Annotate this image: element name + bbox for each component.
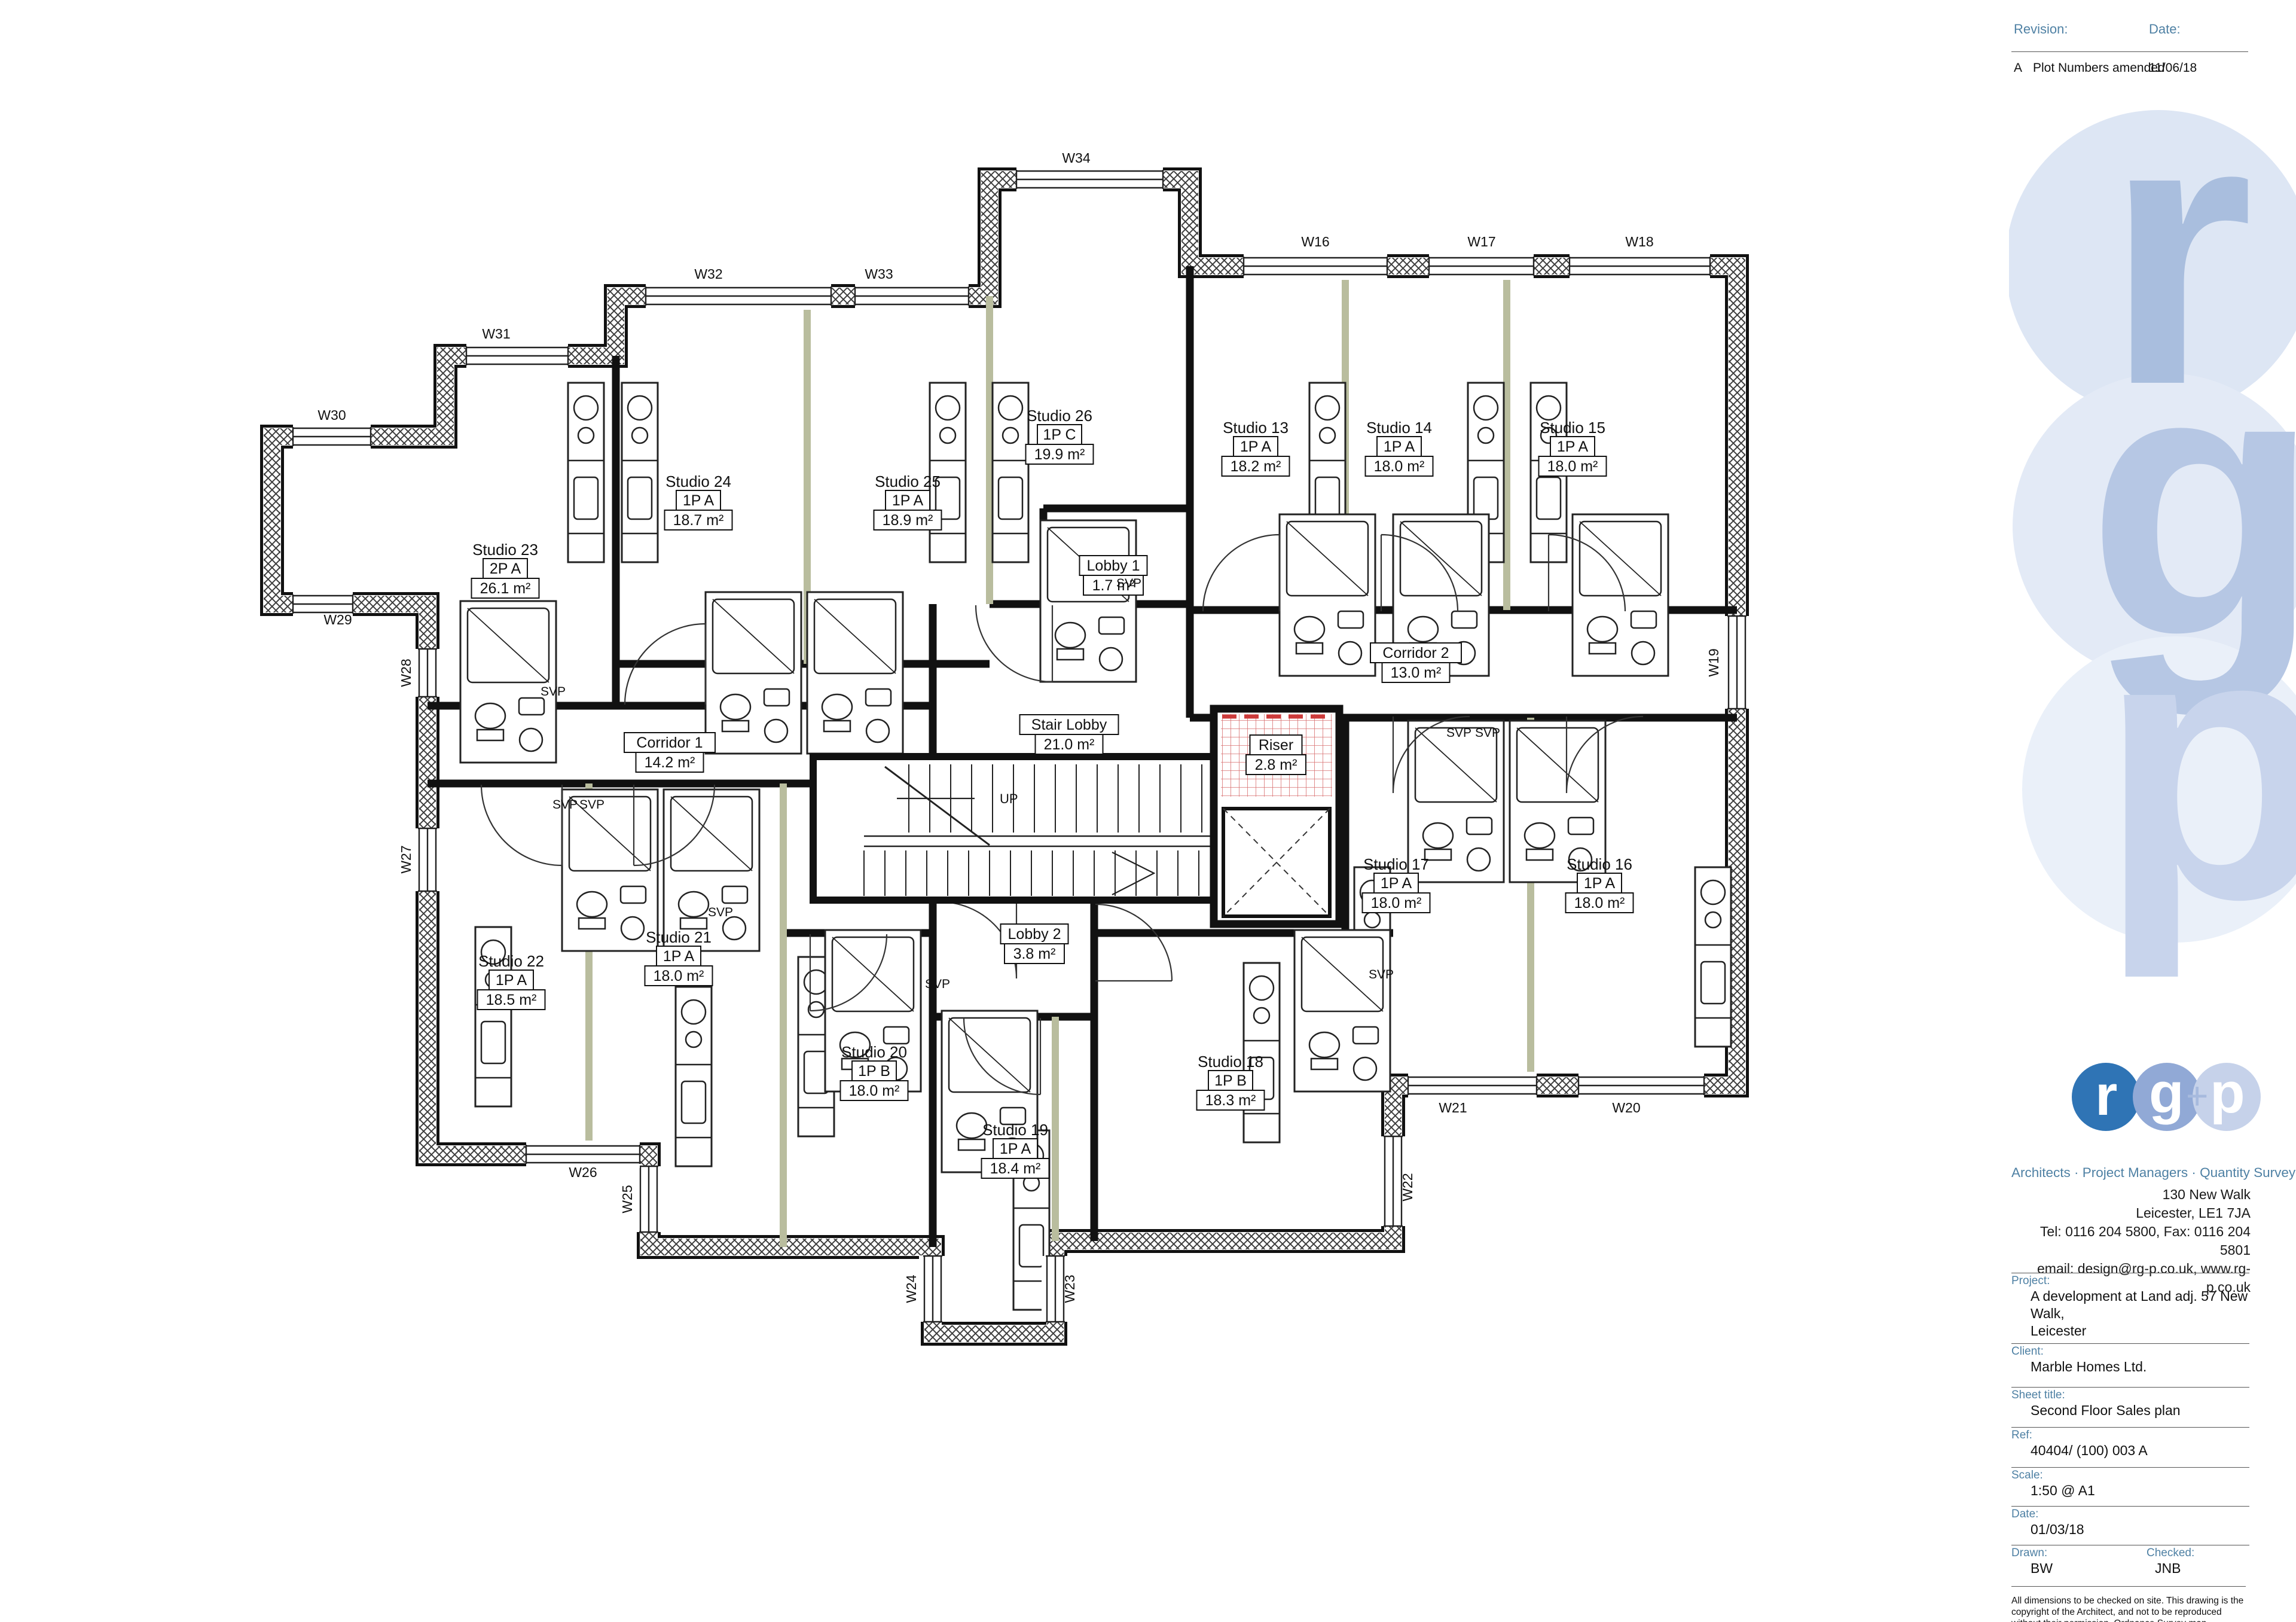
window-w16: W16 — [1244, 234, 1387, 280]
label-text: 18.0 m² — [1371, 895, 1422, 911]
room-name: Studio 14 — [1366, 419, 1432, 437]
firm-tagline: Architects · Project Managers · Quantity… — [2011, 1165, 2251, 1181]
window-label: W19 — [1706, 648, 1721, 676]
logo-letter-p: p — [2210, 1061, 2245, 1125]
logo-plus-icon: + — [2186, 1074, 2208, 1117]
window-label: W30 — [317, 407, 346, 423]
label-text: Riser — [1259, 737, 1293, 754]
revision-date-header-label: Date: — [2149, 22, 2181, 37]
logo-letter-r: r — [2095, 1063, 2117, 1127]
ref-label: Ref: — [2011, 1429, 2249, 1442]
floor-plan: W30W31W32W33W34W16W17W18W19W20W21W22W23W… — [0, 0, 2009, 1622]
label-text: 18.3 m² — [1205, 1092, 1256, 1109]
window-label: W16 — [1301, 234, 1329, 249]
room-name: Studio 23 — [472, 541, 538, 559]
svp-label: SVP — [1475, 726, 1500, 740]
rgp-logo: r g p + — [2069, 1057, 2266, 1141]
label-text: 3.8 m² — [1013, 946, 1056, 962]
floor-plan-area: W30W31W32W33W34W16W17W18W19W20W21W22W23W… — [0, 0, 2009, 1622]
window-label: W28 — [398, 658, 414, 687]
window-w23: W23 — [1042, 1256, 1077, 1322]
title-block-fields: Project: A development at Land adj. 57 N… — [2011, 1273, 2249, 1622]
window-label: W24 — [903, 1275, 919, 1303]
window-w33: W33 — [855, 266, 969, 310]
label-text: 18.0 m² — [654, 968, 704, 984]
window-w20: W20 — [1578, 1072, 1704, 1115]
window-label: W34 — [1062, 150, 1091, 166]
label-text: 1P B — [858, 1063, 890, 1080]
room-name: Studio 19 — [982, 1121, 1048, 1139]
window-label: W23 — [1062, 1275, 1077, 1303]
window-w25: W25 — [619, 1166, 662, 1232]
label-text: 1P B — [1214, 1072, 1247, 1089]
svp-label: SVP — [925, 977, 950, 991]
date-label: Date: — [2011, 1508, 2249, 1521]
svp-label: SVP — [552, 798, 578, 812]
window-w26: W26 — [526, 1141, 640, 1180]
room-label-riser: Riser2.8 m² — [1246, 735, 1306, 775]
window-label: W25 — [619, 1185, 635, 1213]
field-project: Project: A development at Land adj. 57 N… — [2011, 1273, 2249, 1343]
drawing-sheet: W30W31W32W33W34W16W17W18W19W20W21W22W23W… — [0, 0, 2296, 1622]
revision-table-rule — [2011, 51, 2248, 52]
label-text: 18.4 m² — [990, 1160, 1041, 1177]
label-text: 1P A — [1240, 438, 1272, 455]
label-text: 1P A — [683, 492, 715, 509]
window-label: W33 — [865, 266, 893, 282]
sheet-title-value: Second Floor Sales plan — [2031, 1402, 2249, 1419]
label-text: 18.0 m² — [1574, 895, 1625, 911]
label-text: 2.8 m² — [1255, 757, 1297, 773]
revision-table-header: Revision: Date: — [2014, 22, 2289, 37]
date-value: 01/03/18 — [2031, 1521, 2249, 1538]
label-text: 18.2 m² — [1231, 458, 1281, 475]
window-label: W21 — [1439, 1100, 1467, 1115]
watermark-letter-p: p — [2099, 551, 2296, 981]
room-name: Studio 21 — [646, 928, 712, 946]
rgp-watermark: r g p — [2009, 72, 2296, 1089]
firm-phone: Tel: 0116 204 5800, Fax: 0116 204 5801 — [2011, 1222, 2251, 1260]
label-text: Lobby 1 — [1087, 557, 1140, 574]
room-name: Studio 26 — [1027, 407, 1092, 425]
checked-label: Checked: — [2147, 1547, 2194, 1560]
label-text: 2P A — [490, 560, 521, 577]
field-date: Date: 01/03/18 — [2011, 1506, 2249, 1545]
window-label: W32 — [694, 266, 722, 282]
window-w32: W32 — [646, 266, 831, 310]
window-label: W17 — [1467, 234, 1495, 249]
room-label-corridor-1: Corridor 114.2 m² — [624, 733, 715, 772]
window-label: W18 — [1625, 234, 1653, 249]
svp-label: SVP — [1369, 968, 1394, 981]
label-text: 1P C — [1043, 426, 1076, 443]
client-value: Marble Homes Ltd. — [2031, 1358, 2249, 1376]
label-text: 26.1 m² — [480, 580, 531, 597]
title-panel: Revision: Date: A Plot Numbers amended 1… — [2009, 0, 2296, 1622]
label-text: 1P A — [496, 972, 527, 989]
window-label: W31 — [482, 326, 510, 342]
room-label-corridor-2: Corridor 213.0 m² — [1370, 643, 1461, 682]
stair-text: UP — [1000, 791, 1018, 806]
sheet-title-label: Sheet title: — [2011, 1389, 2249, 1402]
scale-label: Scale: — [2011, 1469, 2249, 1482]
svp-label: SVP — [708, 905, 733, 919]
room-name: Studio 25 — [875, 472, 941, 490]
label-text: Corridor 2 — [1382, 645, 1449, 661]
svp-label: SVP — [1446, 726, 1471, 740]
label-text: 1P A — [663, 948, 695, 965]
label-text: Corridor 1 — [636, 734, 703, 751]
window-w28: W28 — [398, 649, 441, 697]
svp-label: SVP — [1116, 577, 1141, 590]
svp-label: SVP — [541, 685, 566, 699]
window-w24: W24 — [903, 1256, 947, 1322]
firm-address-line2: Leicester, LE1 7JA — [2011, 1204, 2251, 1222]
window-w29: W29 — [293, 590, 353, 627]
label-text: 1P A — [1557, 438, 1589, 455]
window-w18: W18 — [1570, 234, 1710, 280]
window-w27: W27 — [398, 828, 441, 891]
label-text: Stair Lobby — [1031, 717, 1107, 733]
label-text: 18.5 m² — [486, 992, 537, 1008]
room-name: Studio 22 — [478, 952, 544, 970]
room-name: Studio 20 — [841, 1043, 907, 1061]
stair-up-label: UP — [1000, 791, 1018, 806]
label-text: 18.0 m² — [849, 1083, 900, 1099]
room-name: Studio 15 — [1540, 419, 1605, 437]
label-text: 18.9 m² — [883, 512, 933, 529]
project-value-line2: Leicester — [2031, 1322, 2249, 1340]
firm-address-line1: 130 New Walk — [2011, 1185, 2251, 1204]
drawn-value: BW — [2031, 1560, 2249, 1577]
logo-letter-g: g — [2149, 1061, 2184, 1125]
label-text: 13.0 m² — [1391, 664, 1442, 681]
label-text: 21.0 m² — [1044, 736, 1095, 753]
label-text: 1P A — [1584, 875, 1616, 892]
window-w17: W17 — [1429, 234, 1534, 280]
svp-label: SVP — [579, 798, 604, 812]
revision-header-label: Revision: — [2014, 22, 2068, 36]
room-name: Studio 18 — [1198, 1053, 1263, 1071]
window-w21: W21 — [1408, 1072, 1537, 1115]
room-name: Studio 24 — [665, 472, 731, 490]
window-w34: W34 — [1016, 150, 1163, 193]
field-sheet-title: Sheet title: Second Floor Sales plan — [2011, 1387, 2249, 1427]
window-label: W29 — [323, 612, 352, 627]
window-w22: W22 — [1379, 1136, 1415, 1226]
project-value-line1: A development at Land adj. 57 New Walk, — [2031, 1288, 2249, 1322]
project-label: Project: — [2011, 1275, 2249, 1288]
client-label: Client: — [2011, 1345, 2249, 1358]
scale-value: 1:50 @ A1 — [2031, 1482, 2249, 1499]
label-text: 1P A — [892, 492, 924, 509]
staircase — [813, 757, 1214, 900]
field-drawn-checked: Drawn: BW Checked: JNB — [2011, 1545, 2249, 1584]
ref-value: 40404/ (100) 003 A — [2031, 1442, 2249, 1459]
field-client: Client: Marble Homes Ltd. — [2011, 1343, 2249, 1387]
disclaimer-text: All dimensions to be checked on site. Th… — [2011, 1586, 2246, 1622]
window-label: W26 — [569, 1164, 597, 1180]
room-name: Studio 17 — [1363, 855, 1429, 873]
label-text: 1P A — [1381, 875, 1412, 892]
label-text: 18.0 m² — [1374, 458, 1425, 475]
window-label: W22 — [1400, 1173, 1415, 1201]
checked-value: JNB — [2155, 1560, 2194, 1577]
room-label-lobby-2: Lobby 23.8 m² — [1001, 924, 1068, 964]
window-label: W20 — [1612, 1100, 1640, 1115]
window-w30: W30 — [293, 407, 371, 450]
field-ref: Ref: 40404/ (100) 003 A — [2011, 1427, 2249, 1467]
window-w31: W31 — [466, 326, 568, 370]
window-label: W27 — [398, 845, 414, 873]
label-text: 18.0 m² — [1547, 458, 1598, 475]
room-name: Studio 16 — [1567, 855, 1632, 873]
label-text: 18.7 m² — [673, 512, 724, 529]
label-text: Lobby 2 — [1008, 926, 1061, 943]
label-text: 1P A — [1000, 1141, 1031, 1157]
field-scale: Scale: 1:50 @ A1 — [2011, 1467, 2249, 1506]
label-text: 14.2 m² — [645, 754, 695, 771]
label-text: 1P A — [1384, 438, 1415, 455]
checked-block: Checked: JNB — [2147, 1547, 2194, 1577]
label-text: 19.9 m² — [1034, 446, 1085, 463]
room-name: Studio 13 — [1223, 419, 1289, 437]
drawn-label: Drawn: — [2011, 1547, 2249, 1560]
